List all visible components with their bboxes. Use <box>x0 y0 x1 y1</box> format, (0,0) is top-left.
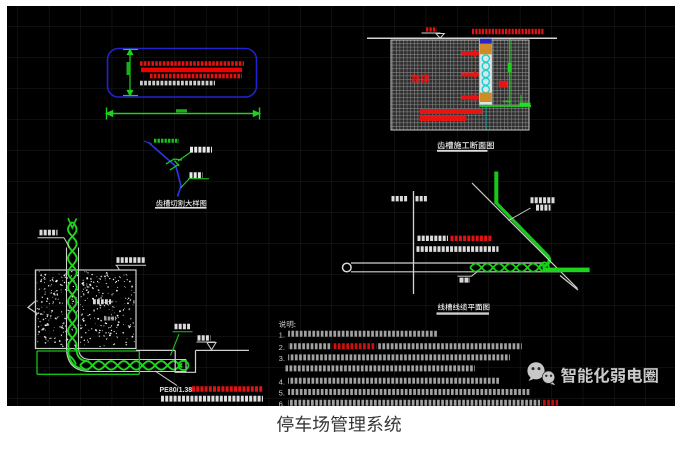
svg-text:1.: 1. <box>279 330 285 339</box>
svg-text:5.: 5. <box>279 389 285 398</box>
svg-text:2.: 2. <box>279 343 285 352</box>
svg-text:6.: 6. <box>279 399 285 408</box>
svg-text:4.: 4. <box>279 377 285 386</box>
svg-text:3.: 3. <box>279 354 285 363</box>
svg-text:PE80/1.38: PE80/1.38 <box>160 387 193 394</box>
